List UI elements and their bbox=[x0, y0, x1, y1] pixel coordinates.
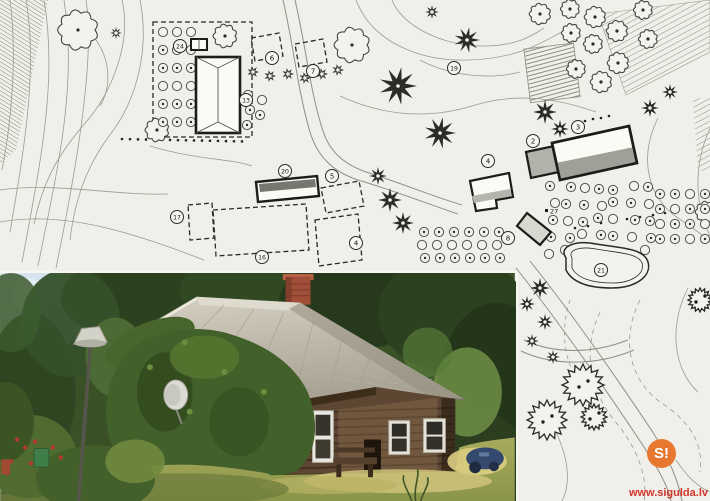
boundary-dot bbox=[193, 139, 196, 142]
orchard-tree bbox=[670, 189, 679, 198]
orchard-tree bbox=[580, 183, 589, 192]
plan-marker-21: 21 bbox=[595, 264, 608, 277]
orchard-tree bbox=[608, 231, 617, 240]
orchard-tree bbox=[670, 219, 679, 228]
orchard-tree bbox=[608, 214, 617, 223]
tree-deciduous bbox=[213, 24, 236, 48]
orchard-tree bbox=[685, 219, 694, 228]
tree-conifer bbox=[425, 5, 439, 19]
orchard-tree bbox=[158, 99, 167, 108]
orchard-tree bbox=[700, 219, 709, 228]
orchard-tree bbox=[627, 232, 636, 241]
green-barrel bbox=[34, 448, 49, 467]
svg-text:13: 13 bbox=[242, 97, 250, 104]
svg-text:4: 4 bbox=[486, 156, 491, 165]
boundary-dot bbox=[652, 214, 655, 217]
orchard-tree bbox=[447, 240, 456, 249]
orchard-tree bbox=[655, 204, 664, 213]
orchard-tree bbox=[548, 215, 557, 224]
building-shed bbox=[191, 39, 207, 50]
orchard-tree bbox=[544, 249, 553, 258]
orchard-tree bbox=[434, 227, 443, 236]
orchard-tree bbox=[449, 227, 458, 236]
orchard-tree bbox=[419, 227, 428, 236]
tree-deciduous bbox=[566, 60, 585, 79]
tree-deciduous bbox=[584, 6, 605, 27]
orchard-tree bbox=[186, 81, 195, 90]
orchard-tree bbox=[172, 63, 181, 72]
tree-oak bbox=[688, 288, 710, 312]
plan-marker-5: 5 bbox=[326, 170, 339, 183]
tree-deciduous bbox=[606, 20, 627, 41]
tree-deciduous bbox=[561, 24, 580, 43]
orchard-tree bbox=[643, 182, 652, 191]
boundary-dot bbox=[217, 140, 220, 143]
orchard-tree bbox=[464, 227, 473, 236]
orchard-tree bbox=[670, 234, 679, 243]
orchard-tree bbox=[172, 99, 181, 108]
orchard-tree bbox=[158, 45, 167, 54]
boundary-dot bbox=[664, 212, 667, 215]
svg-text:6: 6 bbox=[270, 53, 275, 62]
orchard-tree bbox=[435, 253, 444, 262]
tree-conifer bbox=[392, 212, 414, 234]
orchard-tree bbox=[479, 227, 488, 236]
tree-conifer bbox=[110, 27, 122, 39]
orchard-tree bbox=[596, 230, 605, 239]
svg-text:17: 17 bbox=[173, 214, 181, 221]
plan-marker-4: 4 bbox=[482, 155, 495, 168]
orchard-tree bbox=[417, 240, 426, 249]
orchard-tree bbox=[242, 120, 251, 129]
tree-conifer bbox=[530, 278, 550, 298]
glazed-door bbox=[313, 411, 334, 463]
orchard-tree bbox=[646, 233, 655, 242]
window-b bbox=[424, 419, 446, 453]
tree-deciduous bbox=[583, 35, 602, 54]
svg-text:20: 20 bbox=[281, 168, 289, 175]
orchard-tree bbox=[158, 81, 167, 90]
orchard-tree bbox=[432, 240, 441, 249]
orchard-tree bbox=[700, 189, 709, 198]
orchard-tree bbox=[495, 253, 504, 262]
orchard-tree bbox=[593, 213, 602, 222]
orchard-tree bbox=[655, 234, 664, 243]
tree-deciduous bbox=[638, 30, 657, 49]
tree-deciduous bbox=[560, 0, 579, 18]
window-a bbox=[389, 421, 410, 455]
orchard-tree bbox=[577, 229, 586, 238]
sigulda-logo[interactable]: S! www.sigulda.lv bbox=[615, 439, 710, 501]
plan-marker-19: 19 bbox=[448, 62, 461, 75]
orchard-tree bbox=[492, 240, 501, 249]
orchard-tree bbox=[477, 240, 486, 249]
boundary-dot bbox=[233, 140, 236, 143]
boundary-dot bbox=[137, 138, 140, 141]
boundary-dot bbox=[121, 138, 124, 141]
tree-deciduous bbox=[529, 3, 550, 24]
svg-text:21: 21 bbox=[597, 267, 605, 274]
orchard-tree bbox=[608, 185, 617, 194]
svg-text:3: 3 bbox=[576, 122, 581, 131]
boundary-dot bbox=[145, 138, 148, 141]
orchard-tree bbox=[644, 199, 653, 208]
orchard-tree bbox=[685, 234, 694, 243]
tree-conifer bbox=[662, 84, 678, 100]
svg-text:7: 7 bbox=[311, 66, 316, 75]
orchard-tree bbox=[655, 189, 664, 198]
orchard-tree bbox=[462, 240, 471, 249]
orchard-tree bbox=[626, 198, 635, 207]
plan-marker-3: 3 bbox=[572, 121, 585, 134]
orchard-tree bbox=[172, 117, 181, 126]
orchard-tree bbox=[629, 181, 638, 190]
sigulda-url[interactable]: www.sigulda.lv bbox=[629, 487, 708, 499]
orchard-tree bbox=[685, 204, 694, 213]
orchard-tree bbox=[578, 217, 587, 226]
orchard-tree bbox=[630, 215, 639, 224]
orchard-tree bbox=[566, 182, 575, 191]
orchard-tree bbox=[186, 63, 195, 72]
boundary-dot bbox=[209, 139, 212, 142]
orchard-tree bbox=[700, 234, 709, 243]
boundary-dot bbox=[129, 138, 132, 141]
tree-deciduous bbox=[590, 71, 611, 92]
boundary-dot bbox=[185, 139, 188, 142]
orchard-tree bbox=[597, 201, 606, 210]
house-photo bbox=[0, 271, 518, 501]
boundary-dot bbox=[584, 120, 587, 123]
orchard-tree bbox=[565, 233, 574, 242]
building-main-house bbox=[196, 57, 240, 133]
plan-marker-6: 6 bbox=[266, 52, 279, 65]
tree-oak bbox=[562, 364, 604, 406]
plan-marker-24: 24 bbox=[174, 40, 187, 53]
boundary-dot bbox=[626, 218, 629, 221]
orchard-tree bbox=[645, 216, 654, 225]
orchard-tree bbox=[186, 99, 195, 108]
svg-text:24: 24 bbox=[176, 43, 184, 50]
orchard-tree bbox=[465, 253, 474, 262]
red-object bbox=[1, 459, 10, 474]
tree-deciduous bbox=[607, 52, 628, 73]
boundary-dot bbox=[225, 140, 228, 143]
orchard-tree bbox=[186, 117, 195, 126]
boundary-dot bbox=[587, 225, 590, 228]
orchard-tree bbox=[186, 27, 195, 36]
orchard-tree bbox=[480, 253, 489, 262]
plan-marker-4: 4 bbox=[350, 237, 363, 250]
svg-text:16: 16 bbox=[258, 254, 266, 261]
tree-conifer bbox=[369, 167, 387, 185]
boundary-dot bbox=[177, 139, 180, 142]
orchard-tree bbox=[172, 27, 181, 36]
sigulda-badge[interactable]: S! bbox=[647, 439, 676, 468]
plan-marker-17: 17 bbox=[171, 211, 184, 224]
orchard-tree bbox=[255, 110, 264, 119]
tree-conifer bbox=[519, 296, 535, 312]
plan-marker-20: 20 bbox=[279, 165, 292, 178]
plan-marker-13: 13 bbox=[240, 94, 253, 107]
plan-marker-7: 7 bbox=[307, 65, 320, 78]
svg-text:5: 5 bbox=[330, 171, 335, 180]
orchard-tree bbox=[158, 27, 167, 36]
orchard-tree bbox=[655, 219, 664, 228]
boundary-dot bbox=[592, 118, 595, 121]
orchard-tree bbox=[550, 198, 559, 207]
svg-text:2: 2 bbox=[531, 136, 536, 145]
orchard-tree bbox=[450, 253, 459, 262]
boundary-dot bbox=[201, 139, 204, 142]
svg-text:4: 4 bbox=[354, 238, 359, 247]
svg-text:19: 19 bbox=[450, 65, 458, 72]
plan-marker-8: 8 bbox=[502, 232, 515, 245]
tree-oak bbox=[527, 400, 567, 440]
tree-conifer bbox=[551, 120, 569, 138]
tree-conifer bbox=[533, 100, 557, 124]
boundary-dot bbox=[608, 115, 611, 118]
tree-conifer bbox=[546, 350, 560, 364]
screenshot-root: 241367193242051716482127 bbox=[0, 0, 710, 501]
boundary-dot bbox=[169, 139, 172, 142]
orchard-tree bbox=[608, 197, 617, 206]
tree-conifer bbox=[378, 188, 402, 212]
tree-conifer bbox=[537, 314, 553, 330]
boundary-dot bbox=[600, 117, 603, 120]
tree-deciduous bbox=[633, 1, 652, 20]
orchard-tree bbox=[158, 117, 167, 126]
sigulda-badge-text: S! bbox=[654, 445, 669, 462]
orchard-tree bbox=[420, 253, 429, 262]
svg-text:8: 8 bbox=[506, 233, 511, 242]
tree-conifer bbox=[641, 99, 659, 117]
tree-conifer bbox=[525, 334, 539, 348]
chimney bbox=[283, 274, 314, 305]
orchard-tree bbox=[594, 184, 603, 193]
orchard-tree bbox=[563, 216, 572, 225]
plan-marker-2: 2 bbox=[527, 135, 540, 148]
orchard-tree bbox=[158, 63, 167, 72]
orchard-tree bbox=[685, 189, 694, 198]
orchard-tree bbox=[561, 199, 570, 208]
orchard-tree bbox=[172, 81, 181, 90]
plan-marker-16: 16 bbox=[256, 251, 269, 264]
building-20 bbox=[256, 176, 319, 202]
tree-oak bbox=[581, 404, 607, 430]
orchard-tree bbox=[670, 204, 679, 213]
orchard-tree bbox=[257, 95, 266, 104]
orchard-tree bbox=[545, 181, 554, 190]
orchard-tree bbox=[579, 200, 588, 209]
svg-text:27: 27 bbox=[550, 208, 558, 216]
orchard-tree bbox=[700, 204, 709, 213]
boundary-dot bbox=[241, 140, 244, 143]
boundary-dot bbox=[574, 227, 577, 230]
